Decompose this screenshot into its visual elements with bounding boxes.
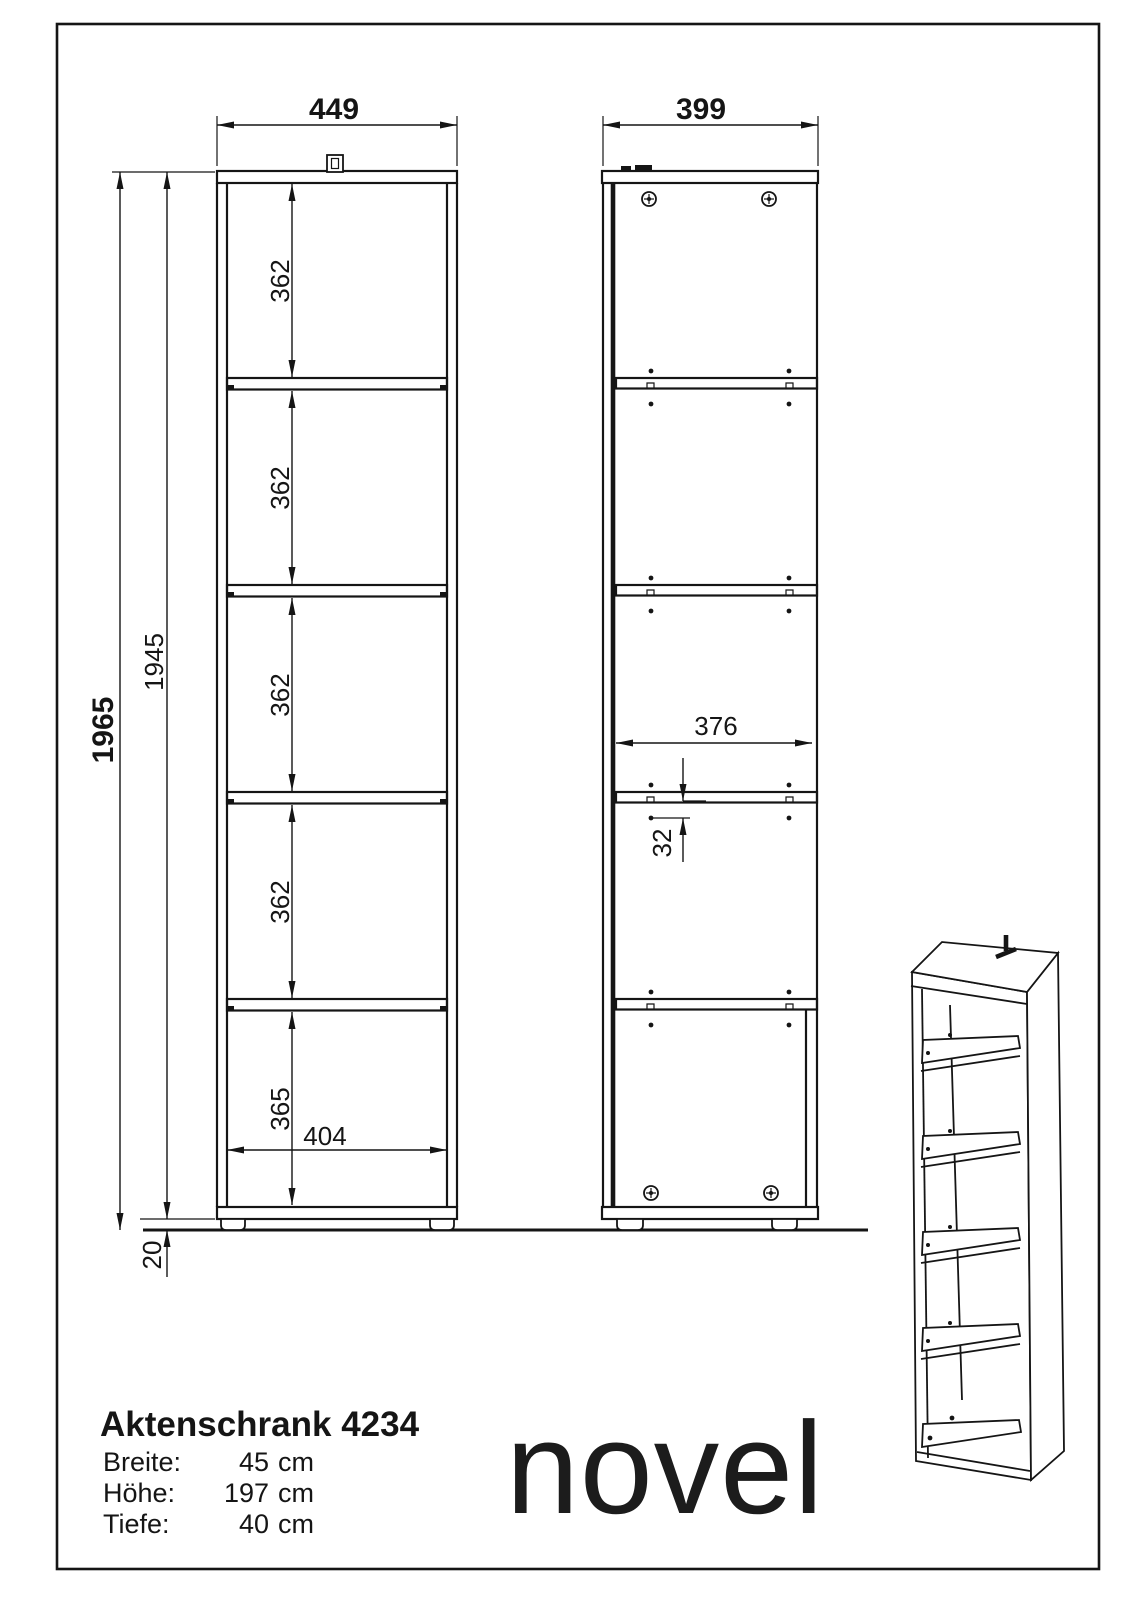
dim-front-width: 449 — [309, 95, 359, 125]
screw-icon — [642, 192, 778, 1200]
dim-side-depth: 399 — [676, 95, 726, 125]
product-specs: Breite: 45 cm Höhe: 197 cm Tiefe: 40 cm — [103, 1447, 314, 1540]
spec-value: 40 — [216, 1509, 269, 1540]
dim-compartment-4: 362 — [267, 880, 293, 923]
dim-body-height: 1945 — [141, 633, 167, 691]
spec-label: Tiefe: — [103, 1509, 216, 1540]
spec-value: 45 — [216, 1447, 269, 1478]
datasheet-page: 449 399 1965 1945 362 362 362 362 365 40… — [0, 0, 1132, 1600]
dim-compartment-5: 365 — [267, 1087, 293, 1130]
technical-drawing — [0, 0, 1132, 1600]
perspective-view — [911, 935, 1064, 1480]
dim-shelf-offset: 32 — [649, 829, 675, 858]
spec-row-depth: Tiefe: 40 cm — [103, 1509, 314, 1540]
spec-unit: cm — [278, 1509, 314, 1540]
product-title: Aktenschrank 4234 — [100, 1406, 419, 1444]
spec-unit: cm — [278, 1447, 314, 1478]
spec-row-width: Breite: 45 cm — [103, 1447, 314, 1478]
dim-total-height: 1965 — [89, 697, 119, 764]
spec-label: Breite: — [103, 1447, 216, 1478]
spec-unit: cm — [278, 1478, 314, 1509]
brand-logo: novel — [506, 1402, 824, 1533]
side-view-linework — [602, 165, 818, 1230]
shelf-fittings — [647, 369, 793, 1028]
dim-compartment-3: 362 — [267, 673, 293, 716]
dim-foot-height: 20 — [139, 1241, 165, 1270]
dim-inner-width: 404 — [303, 1123, 346, 1149]
spec-row-height: Höhe: 197 cm — [103, 1478, 314, 1509]
spec-label: Höhe: — [103, 1478, 216, 1509]
spec-value: 197 — [216, 1478, 269, 1509]
dim-compartment-2: 362 — [267, 466, 293, 509]
front-view-linework — [217, 155, 457, 1230]
dim-inner-depth: 376 — [694, 713, 737, 739]
dim-compartment-1: 362 — [267, 259, 293, 302]
